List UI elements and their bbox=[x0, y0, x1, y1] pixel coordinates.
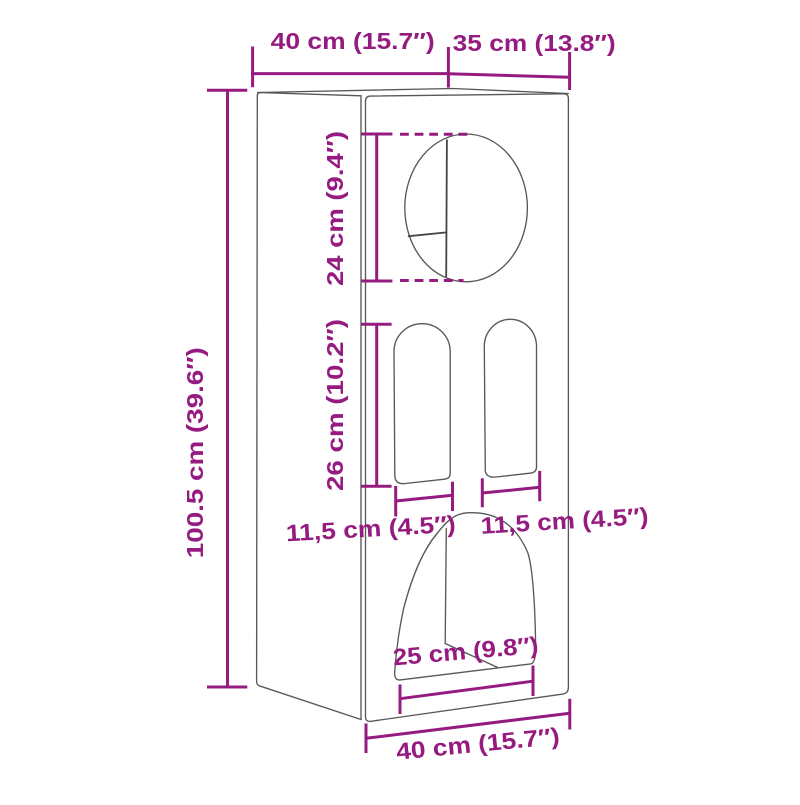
svg-text:40 cm (15.7″): 40 cm (15.7″) bbox=[271, 28, 435, 54]
svg-text:26 cm (10.2″): 26 cm (10.2″) bbox=[322, 319, 348, 491]
svg-text:35 cm (13.8″): 35 cm (13.8″) bbox=[453, 30, 616, 56]
svg-text:100.5 cm (39.6″): 100.5 cm (39.6″) bbox=[182, 347, 208, 558]
svg-text:24 cm (9.4″): 24 cm (9.4″) bbox=[322, 131, 348, 286]
